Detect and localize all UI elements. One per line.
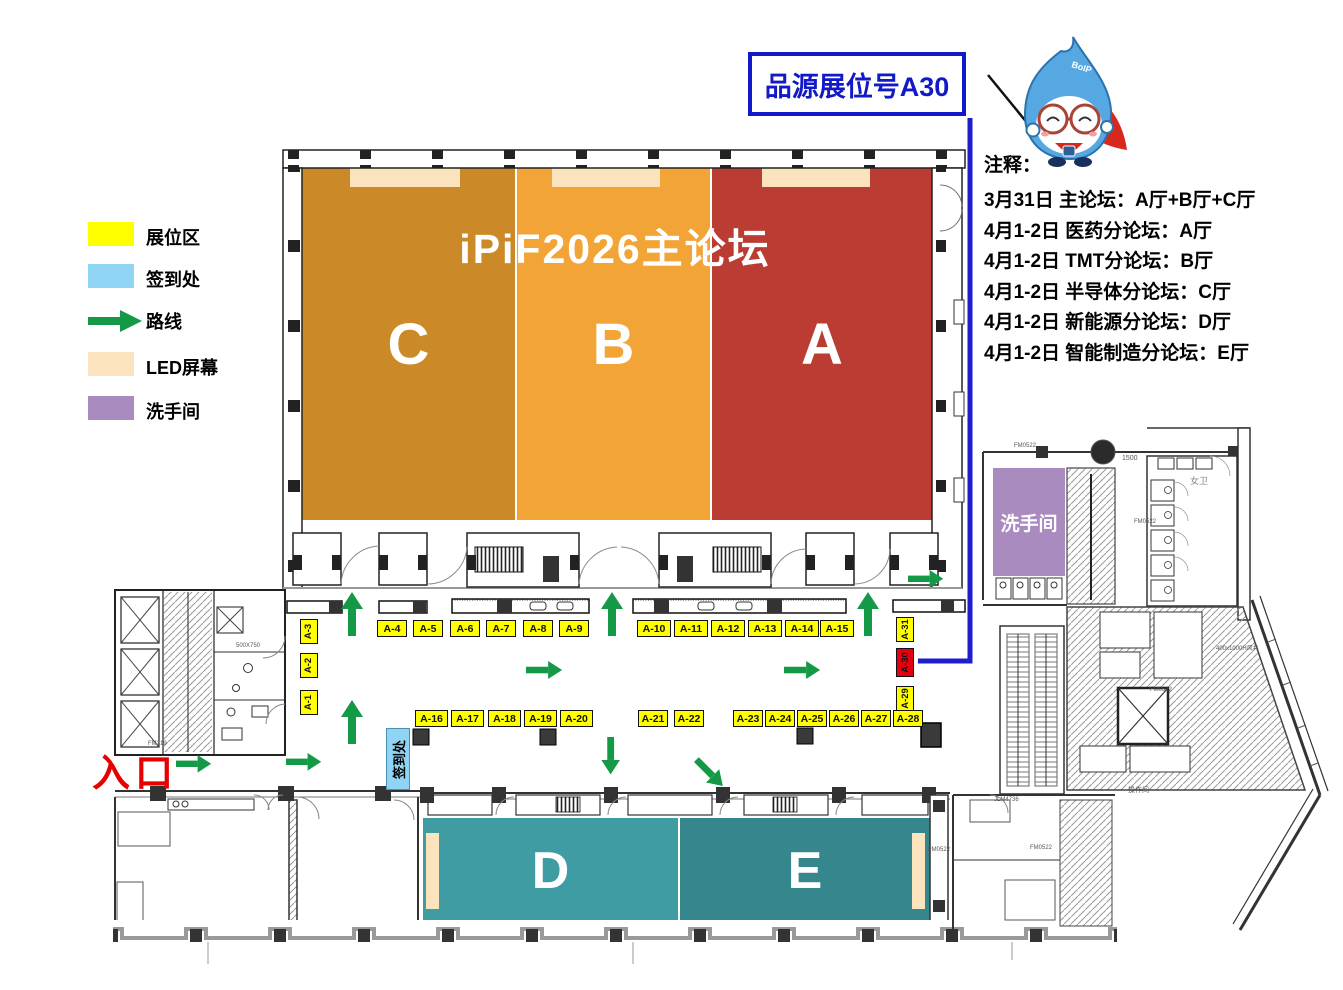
left-core-elevators-stairs: [115, 590, 285, 755]
escalators: [1000, 626, 1064, 794]
booth-A-11: A-11: [674, 620, 708, 637]
route-arrow-up: [601, 592, 623, 636]
booth-A-13: A-13: [748, 620, 782, 637]
legend-swatch-booth: [88, 222, 134, 246]
legend-swatch-restroom: [88, 396, 134, 420]
booth-A-1: A-1: [300, 690, 318, 715]
route-arrow-up: [341, 592, 363, 636]
signin-desk: 签到处: [386, 728, 410, 790]
mascot-hand: [1027, 124, 1040, 137]
legend-label-led: LED屏幕: [146, 354, 218, 380]
notes-line: 4月1-2日 智能制造分论坛：E厅: [984, 339, 1334, 370]
route-arrow-right: [286, 753, 321, 771]
legend-route-arrow-icon: [88, 310, 142, 332]
booth-A-8: A-8: [523, 620, 553, 637]
booth-A-6: A-6: [450, 620, 480, 637]
mascot-character: BoIP: [985, 35, 1135, 167]
arch-label: FM0522: [928, 847, 950, 853]
booth-A-12: A-12: [711, 620, 745, 637]
booth-A-14: A-14: [785, 620, 819, 637]
booth-A-3: A-3: [300, 619, 318, 644]
legend-label-route: 路线: [146, 308, 182, 334]
booth-A-29: A-29: [896, 686, 914, 711]
mascot-glasses: [1039, 105, 1067, 133]
booth-A-15: A-15: [820, 620, 854, 637]
booth-A-20: A-20: [560, 710, 593, 727]
route-arrow-right: [176, 755, 211, 773]
legend-label-signin: 签到处: [146, 266, 200, 292]
booth-callout: 品源展位号A30: [748, 52, 966, 116]
floor-plan: C B A D E iPiF2026主论坛: [0, 0, 1343, 990]
booth-A-24: A-24: [765, 710, 795, 727]
route-arrow-up: [341, 700, 363, 744]
mascot-glasses: [1071, 105, 1099, 133]
booth-A-21: A-21: [638, 710, 668, 727]
legend-label-restroom: 洗手间: [146, 398, 200, 424]
restroom-area: 洗手间: [993, 468, 1065, 576]
booth-A-18: A-18: [488, 710, 521, 727]
arch-label: FM219: [148, 741, 167, 747]
legend-swatch-signin: [88, 264, 134, 288]
arch-label: 操作间: [1128, 785, 1149, 795]
arch-label: 400x1000H风井: [1216, 643, 1259, 652]
entrance-label: 入口: [92, 742, 178, 797]
page-title: iPiF2026主论坛: [395, 215, 835, 275]
mascot-hand: [1101, 121, 1113, 133]
notes-line: 4月1-2日 新能源分论坛：D厅: [984, 308, 1334, 339]
notes-block: 注释： 3月31日 主论坛：A厅+B厅+C厅 4月1-2日 医药分论坛：A厅 4…: [984, 150, 1334, 369]
notes-line: 4月1-2日 半导体分论坛：C厅: [984, 278, 1334, 309]
arch-label: 女卫: [1190, 474, 1208, 487]
legend-label-booth: 展位区: [146, 224, 200, 250]
mascot-foot: [1048, 157, 1066, 167]
route-arrow-up: [857, 592, 879, 636]
booth-A-4: A-4: [377, 620, 407, 637]
arch-label: FM0522: [1014, 443, 1036, 449]
booth-A-28: A-28: [893, 710, 923, 727]
booth-A-30-highlighted: A-30: [896, 648, 914, 677]
booth-A-25: A-25: [797, 710, 827, 727]
booth-A-5: A-5: [413, 620, 443, 637]
arch-label: FM0522: [1030, 845, 1052, 851]
bottom-left-rooms: [115, 786, 420, 928]
booth-A-10: A-10: [637, 620, 671, 637]
bottom-facade-wall: [113, 920, 1117, 964]
booth-A-27: A-27: [861, 710, 891, 727]
mascot-foot: [1074, 157, 1092, 167]
route-arrow-right: [784, 661, 820, 679]
de-hall-top-wall: [420, 787, 950, 928]
booth-A-17: A-17: [451, 710, 484, 727]
notes-line: 3月31日 主论坛：A厅+B厅+C厅: [984, 186, 1334, 217]
arch-label: 500X750: [236, 643, 260, 649]
route-arrow-down: [601, 737, 620, 774]
booth-A-31: A-31: [896, 617, 914, 642]
arch-label: 1500: [1122, 455, 1138, 462]
booth-A-19: A-19: [524, 710, 557, 727]
arch-label: JLM4736: [994, 797, 1019, 803]
route-arrow-diagonal: [690, 753, 730, 793]
booth-A-2: A-2: [300, 653, 318, 678]
notes-line: 4月1-2日 医药分论坛：A厅: [984, 217, 1334, 248]
booth-A-7: A-7: [486, 620, 516, 637]
notes-line: 4月1-2日 TMT分论坛：B厅: [984, 247, 1334, 278]
booth-A-9: A-9: [559, 620, 589, 637]
booth-A-16: A-16: [415, 710, 448, 727]
booth-A-22: A-22: [674, 710, 704, 727]
legend-swatch-led: [88, 352, 134, 376]
arch-label: FM0522: [1134, 519, 1156, 525]
booth-A-26: A-26: [829, 710, 859, 727]
booth-A-23: A-23: [733, 710, 763, 727]
route-arrow-right: [526, 661, 562, 679]
vestibule-rooms: [283, 533, 962, 588]
floorplan-linework: [0, 0, 1343, 990]
arch-label: FM0522: [1150, 687, 1172, 693]
